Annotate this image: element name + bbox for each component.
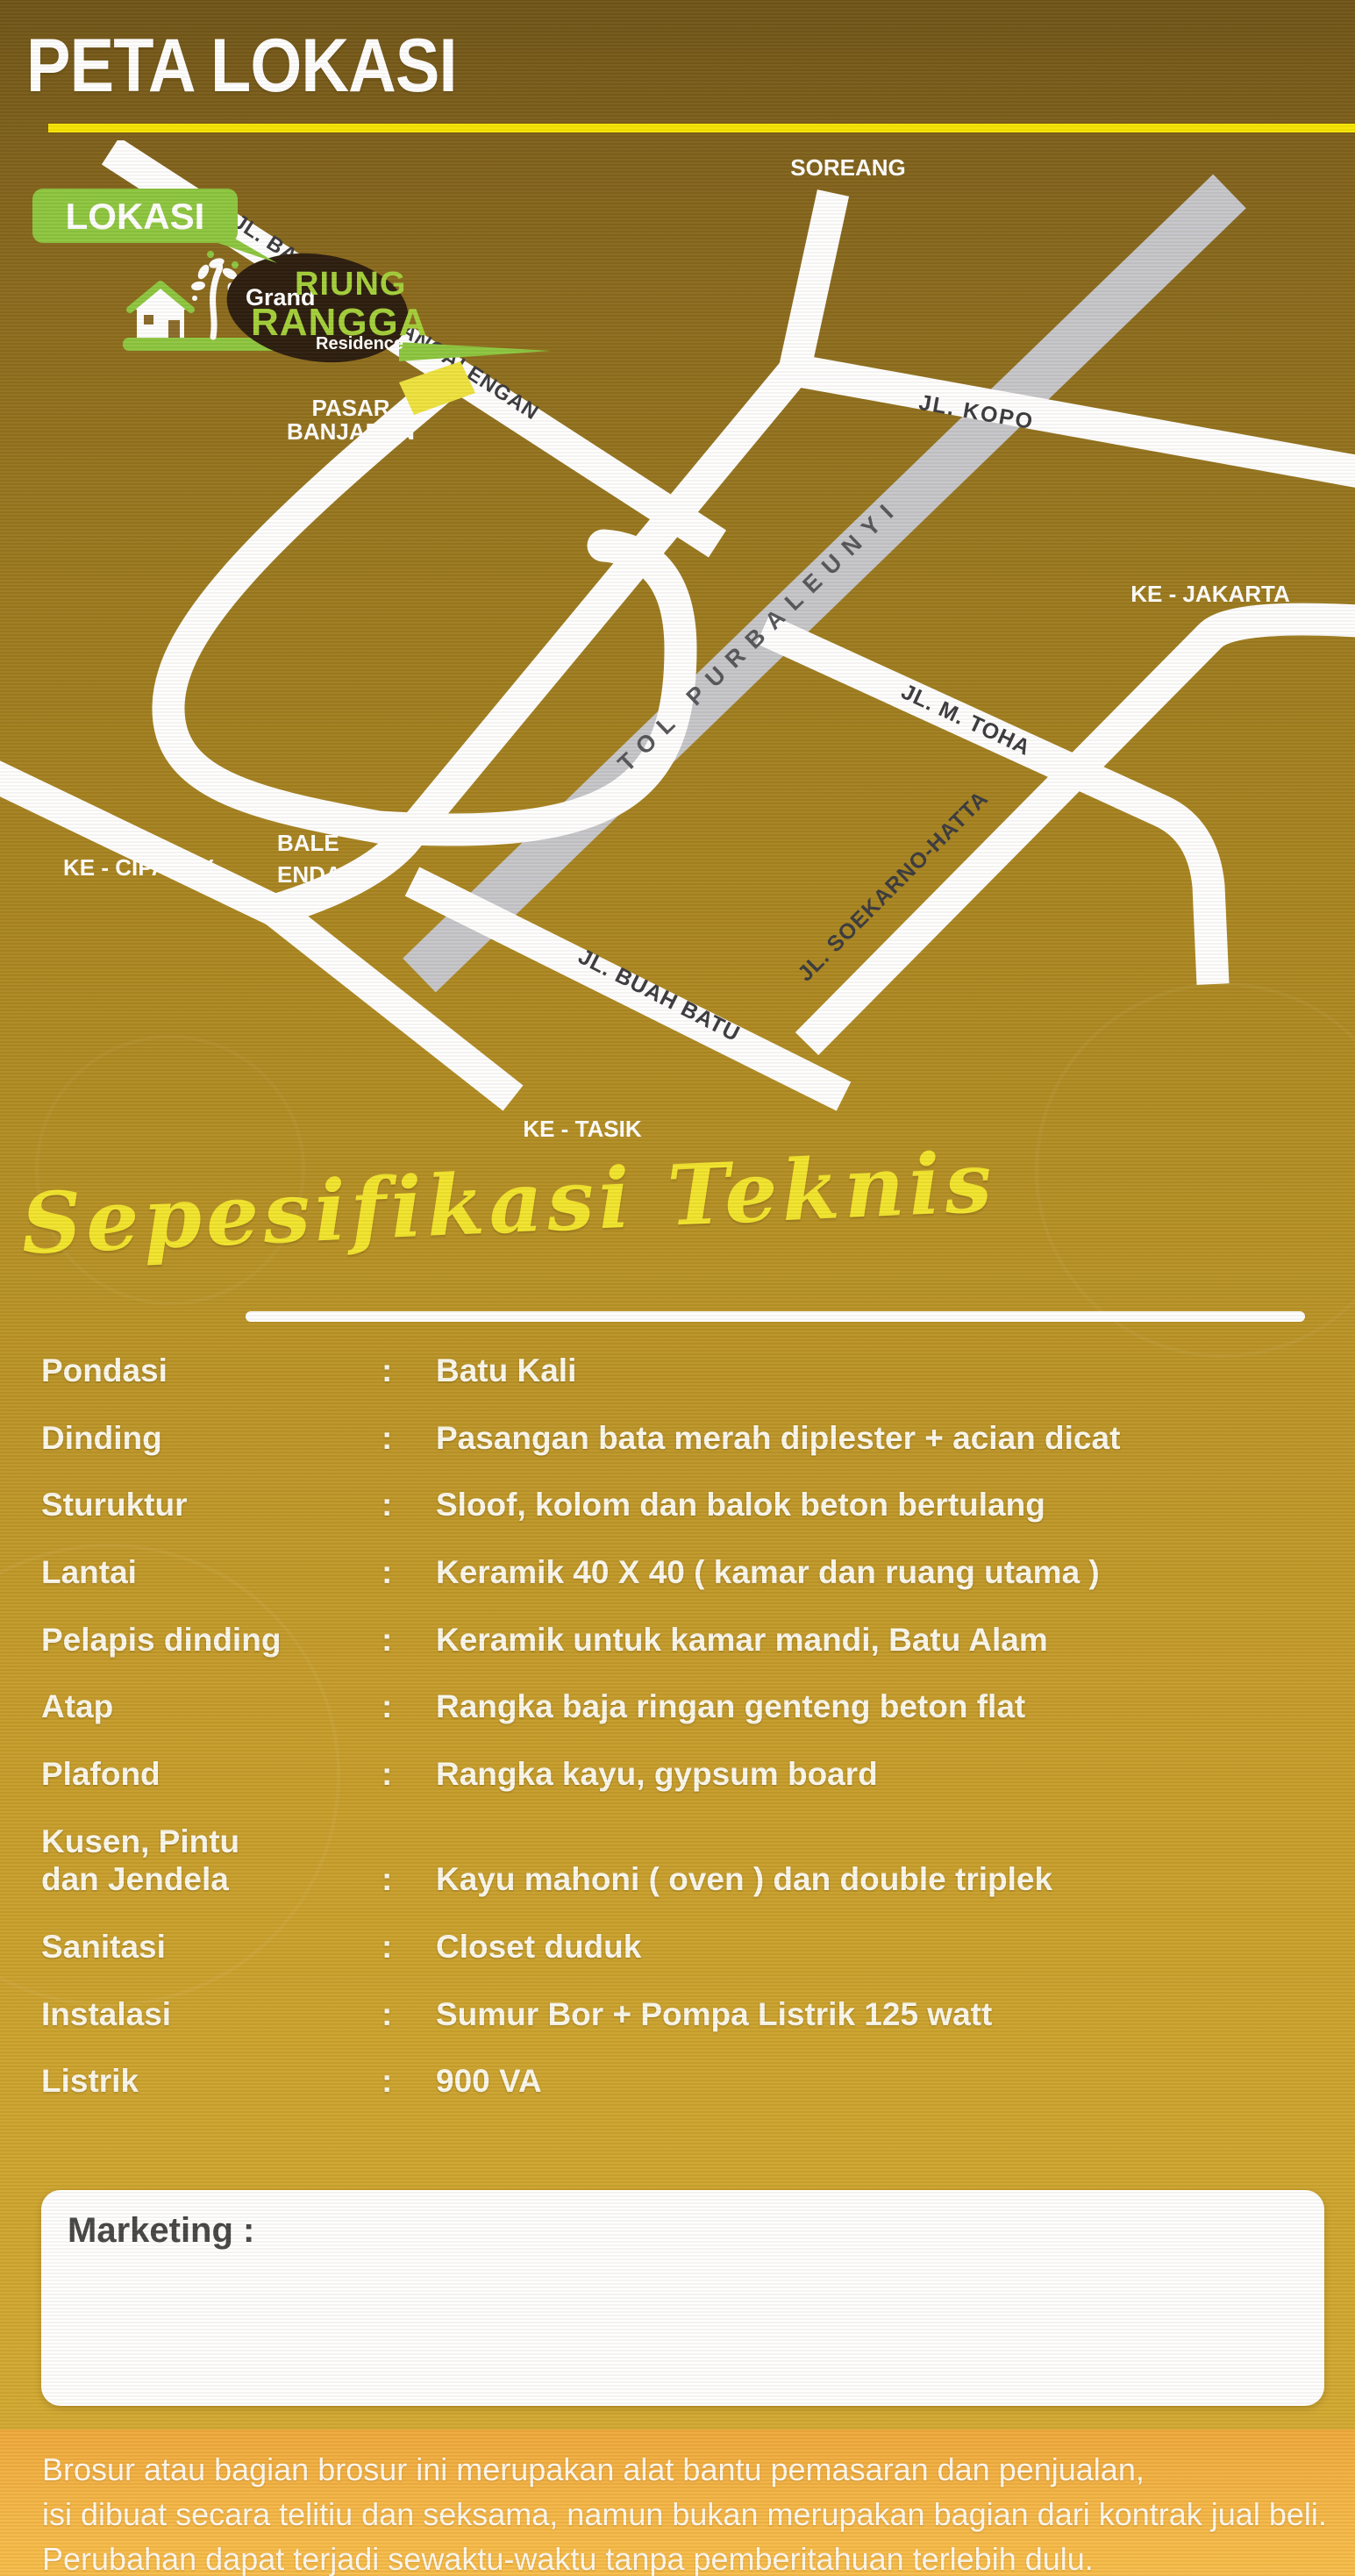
spec-value: Keramik untuk kamar mandi, Batu Alam [436,1621,1323,1659]
m-toha-road-label: JL. M. TOHA [897,679,1034,760]
spec-colon: : [382,1419,436,1458]
specifications-section: Sepesifikasi Teknis Pondasi : Batu Kali … [0,1180,1355,2188]
spec-label: Lantai [41,1553,382,1592]
spec-row: Atap : Rangka baja ringan genteng beton … [41,1688,1323,1726]
spec-label: Pelapis dinding [41,1621,382,1659]
pasar-banjaran-label-line2: BANJARAN [287,418,415,445]
disclaimer-line: Perubahan dapat terjadi sewaktu-waktu ta… [42,2537,1355,2576]
spec-value: Rangka baja ringan genteng beton flat [436,1688,1323,1726]
spec-value: Sumur Bor + Pompa Listrik 125 watt [436,1995,1323,2034]
spec-label: Atap [41,1688,382,1726]
spec-value: Pasangan bata merah diplester + acian di… [436,1419,1323,1458]
spec-value: Batu Kali [436,1352,1323,1390]
spec-row: Dinding : Pasangan bata merah diplester … [41,1419,1323,1458]
spec-list: Pondasi : Batu Kali Dinding : Pasangan b… [41,1352,1323,2130]
spec-label: Plafond [41,1755,382,1794]
bale-endah-label-line1: BALE [277,830,339,856]
specs-heading-underline [246,1311,1305,1322]
spec-colon: : [382,1995,436,2034]
marketing-box: Marketing : [41,2190,1324,2406]
logo-riung-text: RIUNG [295,266,406,303]
spec-label: Kusen, Pintu dan Jendela [41,1823,382,1899]
spec-label: Sturuktur [41,1486,382,1524]
spec-colon: : [382,1486,436,1524]
spec-colon: : [382,1755,436,1794]
disclaimer-band: Brosur atau bagian brosur ini merupakan … [0,2430,1355,2576]
lokasi-badge-label: LOKASI [66,196,205,237]
spec-row: Listrik : 900 VA [41,2062,1323,2101]
spec-row: Pondasi : Batu Kali [41,1352,1323,1390]
road-to-soreang [795,193,833,370]
spec-label: Sanitasi [41,1928,382,1966]
spec-row: Plafond : Rangka kayu, gypsum board [41,1755,1323,1794]
spec-value: 900 VA [436,2062,1323,2101]
spec-value: Kayu mahoni ( oven ) dan double triplek [436,1860,1323,1899]
pasar-banjaran-label-line1: PASAR [311,395,389,421]
ke-ciparay-label: KE - CIPARAY [63,854,214,881]
spec-row: Lantai : Keramik 40 X 40 ( kamar dan rua… [41,1553,1323,1592]
house-icon [130,284,191,338]
page-title: PETA LOKASI [26,23,457,110]
spec-row: Kusen, Pintu dan Jendela : Kayu mahoni (… [41,1823,1323,1899]
spec-label: Listrik [41,2062,382,2101]
soreang-label: SOREANG [790,154,905,181]
spec-label: Instalasi [41,1995,382,2034]
spec-row: Sturuktur : Sloof, kolom dan balok beton… [41,1486,1323,1524]
spec-colon: : [382,1621,436,1659]
spec-row: Sanitasi : Closet duduk [41,1928,1323,1966]
road-jl-kopo [795,370,1355,472]
title-underline [48,124,1355,132]
spec-colon: : [382,1352,436,1390]
spec-label: Pondasi [41,1352,382,1390]
spec-value: Closet duduk [436,1928,1323,1966]
brochure-page: PETA LOKASI TOL PURBALEUNYI [0,0,1355,2576]
location-map: TOL PURBALEUNYI JL. BANJARAN - PANGALENG… [0,140,1355,1175]
ke-jakarta-label: KE - JAKARTA [1130,581,1290,607]
bale-endah-label-line2: ENDAH [277,861,358,888]
spec-colon: : [382,1860,436,1899]
spec-colon: : [382,1553,436,1592]
ke-tasik-label: KE - TASIK [523,1116,642,1142]
marketing-label: Marketing : [68,2211,254,2251]
spec-colon: : [382,1688,436,1726]
disclaimer-line: isi dibuat secara telitiu dan seksama, n… [42,2492,1355,2537]
spec-row: Pelapis dinding : Keramik untuk kamar ma… [41,1621,1323,1659]
spec-row: Instalasi : Sumur Bor + Pompa Listrik 12… [41,1995,1323,2034]
spec-value: Keramik 40 X 40 ( kamar dan ruang utama … [436,1553,1323,1592]
spec-value: Rangka kayu, gypsum board [436,1755,1323,1794]
disclaimer-line: Brosur atau bagian brosur ini merupakan … [42,2447,1355,2492]
buah-batu-road-label: JL. BUAH BATU [574,944,744,1046]
logo-residence-text: Residence [316,334,403,353]
logo-ground-taper [399,342,551,361]
spec-colon: : [382,2062,436,2101]
spec-value: Sloof, kolom dan balok beton bertulang [436,1486,1323,1524]
spec-colon: : [382,1928,436,1966]
spec-label: Dinding [41,1419,382,1458]
